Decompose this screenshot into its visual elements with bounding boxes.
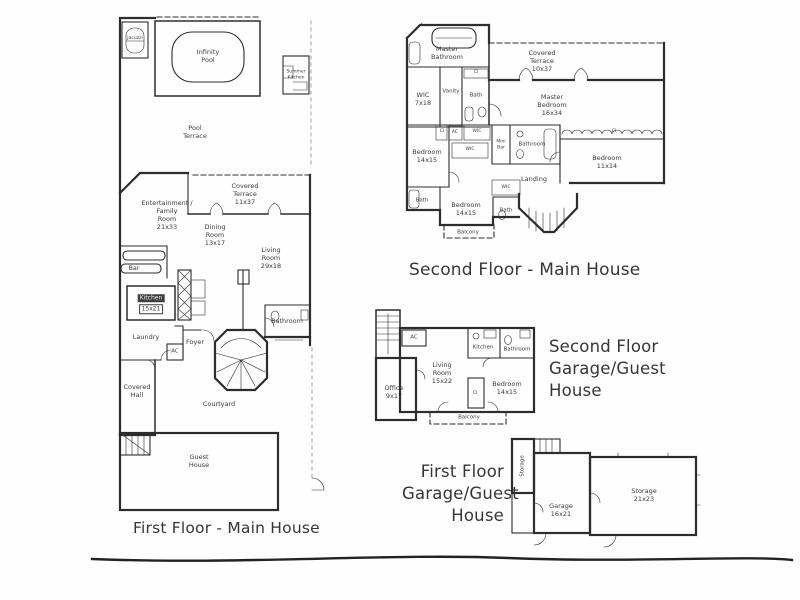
- room-label-wic-7x18: WIC 7x18: [415, 91, 431, 107]
- guest-house-walls: [120, 433, 278, 510]
- second-floor-garage-walls: [372, 300, 544, 432]
- floorplan-scan: { "colors": {"paper":"#ffffff","ink":"#2…: [0, 0, 800, 600]
- room-label-balcony-2: Balcony: [457, 230, 479, 237]
- courtyard-edge: [312, 348, 324, 490]
- outer-walls-3: [512, 439, 696, 535]
- room-label-covered-terrace: Covered Terrace 11x37: [231, 182, 258, 206]
- room-label-storage-right: Storage 21x23: [631, 487, 656, 503]
- room-label-garage: Garage 16x21: [549, 502, 573, 518]
- first-floor-garage-walls: [498, 433, 703, 548]
- room-label-summer-kitchen: Summer Kitchen: [286, 69, 305, 80]
- room-label-jacuzzi: Jacuzzi: [127, 36, 142, 42]
- room-label-bathroom: Bathroom: [271, 317, 303, 325]
- stair-turret: [215, 330, 267, 390]
- room-label-bath-top: Bath: [470, 93, 483, 100]
- room-label-infinity-pool: Infinity Pool: [197, 48, 219, 64]
- scan-edge-line: [88, 550, 798, 568]
- room-label-vanity: Vanity: [442, 89, 459, 96]
- room-label-covered-terrace-2: Covered Terrace 10x37: [528, 49, 555, 73]
- room-label-guest-house: Guest House: [189, 453, 209, 469]
- stair-shaft: [178, 270, 205, 320]
- plan-second-floor-main: Master Bathroom Covered Terrace 10x37 Va…: [392, 12, 672, 250]
- stairwell: [376, 310, 400, 358]
- room-label-foyer: Foyer: [186, 338, 204, 346]
- room-label-master-bedroom: Master Bedroom 16x34: [537, 93, 566, 117]
- room-label-bar: Bar: [128, 264, 139, 272]
- room-label-kitchen-2: Kitchen: [473, 345, 494, 352]
- room-label-landing: Landing: [521, 175, 547, 183]
- room-label-bath-bottom: Bath: [500, 208, 513, 215]
- stair-bay: [519, 194, 577, 232]
- room-label-ac-3: AC: [410, 335, 418, 342]
- first-floor-main-walls: [115, 8, 330, 543]
- title-first-floor-main-house: First Floor - Main House: [133, 518, 320, 538]
- room-label-office: Office 9x17: [385, 384, 404, 400]
- room-label-laundry: Laundry: [133, 333, 160, 341]
- room-label-ci-top: CI: [474, 70, 478, 76]
- room-label-ci-garage: CI: [473, 391, 477, 397]
- room-label-bath-left: Bath: [416, 198, 429, 205]
- room-label-master-bathroom: Master Bathroom: [431, 45, 463, 61]
- plan-second-floor-garage: AC Kitchen Bathroom Living Room 15x22 Of…: [372, 300, 544, 432]
- room-label-courtyard: Courtyard: [203, 400, 235, 408]
- room-label-living-room: Living Room 29x18: [261, 246, 281, 270]
- room-label-bathroom-2: Bathroom: [503, 347, 530, 354]
- room-label-bedroom-garage: Bedroom 14x15: [492, 380, 521, 396]
- room-label-kitchen-size: 15x21: [139, 304, 163, 314]
- room-label-covered-hall: Covered Hall: [123, 383, 150, 399]
- plan-first-floor-garage: Storage Garage 16x21 Storage 21x23: [498, 433, 703, 548]
- title-first-floor-garage: First Floor Garage/Guest House: [402, 461, 504, 526]
- scanned-page: Jacuzzi Infinity Pool Summer Kitchen Poo…: [0, 0, 800, 600]
- room-label-entertainment-family-room: Entertainment / Family Room 21x33: [141, 199, 192, 232]
- room-label-dining-room: Dining Room 13x17: [205, 223, 226, 247]
- room-label-wic-upper: WIC: [473, 129, 482, 135]
- room-label-bedroom-right: Bedroom 11x14: [592, 154, 621, 170]
- room-label-kitchen: Kitchen: [138, 294, 165, 302]
- room-label-ci-right: CI: [612, 129, 616, 135]
- room-label-bathroom-center: Bathroom: [518, 142, 545, 149]
- outer-walls-2: [376, 328, 534, 420]
- room-label-storage-left: Storage: [520, 455, 527, 477]
- room-label-ac: AC: [171, 349, 179, 356]
- room-label-ci-left: CI: [440, 129, 444, 135]
- room-label-wic-landing: WIC: [502, 185, 511, 191]
- room-label-mini-bar: Mini Bar: [496, 139, 505, 150]
- master-bath-walls: [407, 28, 489, 127]
- room-label-bedroom-bottom: Bedroom 14x15: [451, 201, 480, 217]
- room-label-bedroom-left: Bedroom 14x15: [412, 148, 441, 164]
- room-label-ac-2: AC: [452, 130, 458, 136]
- room-label-pool-terrace: Pool Terrace: [183, 124, 207, 140]
- room-label-balcony-3: Balcony: [458, 415, 480, 422]
- title-second-floor-garage: Second Floor Garage/Guest House: [549, 336, 666, 401]
- room-label-living-room-2: Living Room 15x22: [432, 361, 452, 385]
- title-second-floor-main-house: Second Floor - Main House: [409, 259, 640, 281]
- plan-first-floor-main: Jacuzzi Infinity Pool Summer Kitchen Poo…: [115, 8, 330, 543]
- room-label-wic-lower: WIC: [466, 147, 475, 153]
